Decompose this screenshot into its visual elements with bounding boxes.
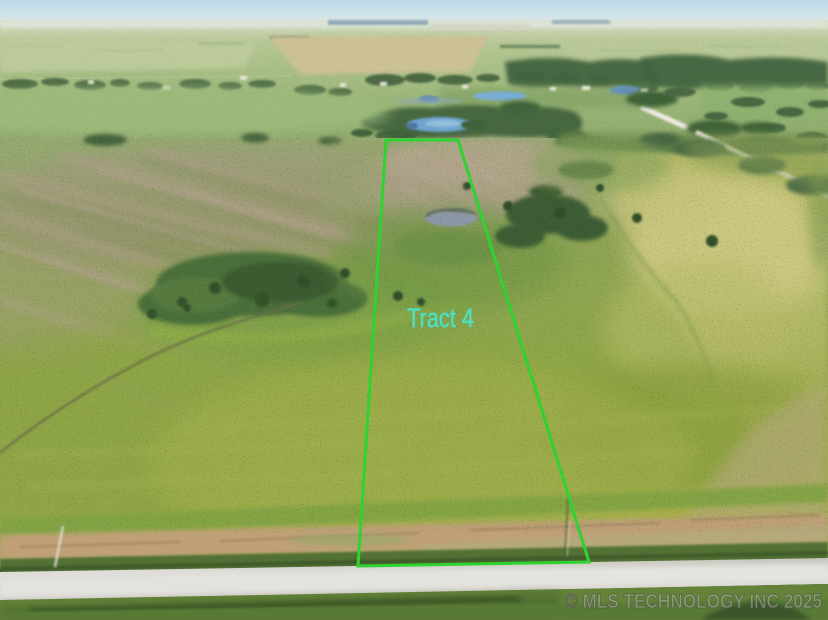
svg-text:© MLS TECHNOLOGY INC 2025: © MLS TECHNOLOGY INC 2025	[565, 591, 822, 613]
svg-text:Tract 4: Tract 4	[407, 303, 474, 333]
